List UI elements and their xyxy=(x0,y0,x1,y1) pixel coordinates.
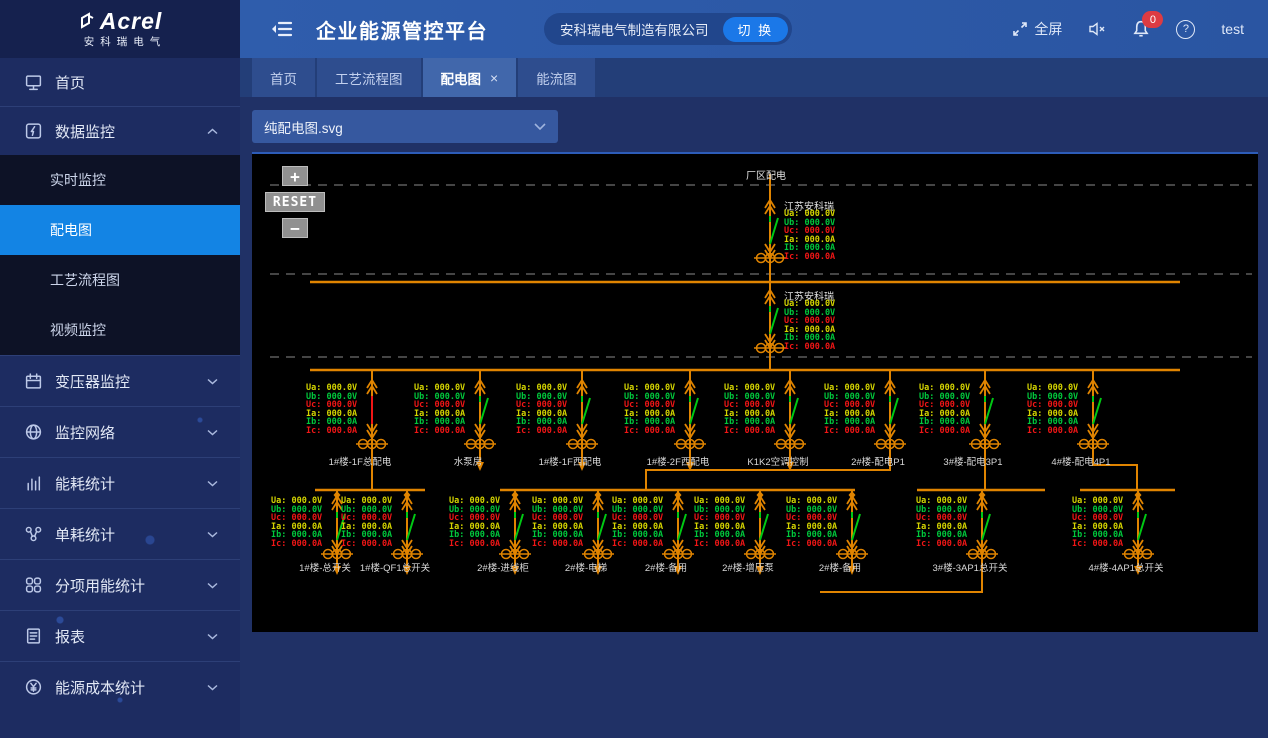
energy-stats-icon xyxy=(24,474,43,493)
sidebar-item-label: 首页 xyxy=(55,72,85,93)
unit-consumption-stats-icon xyxy=(24,525,43,544)
sidebar-item-label: 单耗统计 xyxy=(55,524,115,545)
chevron-down-icon xyxy=(207,480,218,487)
logo: Acrel 安科瑞电气 xyxy=(0,0,240,58)
username[interactable]: test xyxy=(1221,21,1244,37)
bottom-feeder-label: 4#楼-4AP1总开关 xyxy=(1051,560,1201,574)
sidebar-item-label: 能耗统计 xyxy=(55,473,115,494)
phase-readings: Ua: 000.0VUb: 000.0VUc: 000.0VIa: 000.0A… xyxy=(341,497,392,549)
tabbar: 首页工艺流程图配电图×能流图 xyxy=(240,58,1268,97)
tab-0[interactable]: 首页 xyxy=(252,58,315,97)
fullscreen-icon xyxy=(1012,21,1028,37)
zoom-reset-button[interactable]: RESET xyxy=(265,192,325,212)
bottom-feeder-label: 3#楼-3AP1总开关 xyxy=(895,560,1045,574)
chevron-down-icon xyxy=(207,429,218,436)
content: 纯配电图.svg + RESET − 厂区配电江苏安科瑞Ua: 000.0VUb… xyxy=(240,97,1268,738)
sidebar-item-label: 报表 xyxy=(55,626,85,647)
logo-subtitle: 安科瑞电气 xyxy=(84,34,167,49)
phase-readings: Ua: 000.0VUb: 000.0VUc: 000.0VIa: 000.0A… xyxy=(306,384,357,436)
phase-readings: Ua: 000.0VUb: 000.0VUc: 000.0VIa: 000.0A… xyxy=(824,384,875,436)
phase-readings: Ua: 000.0VUb: 000.0VUc: 000.0VIa: 000.0A… xyxy=(784,210,835,262)
sidebar-item-energy-cost-stats[interactable]: 能源成本统计 xyxy=(0,661,240,712)
phase-readings: Ua: 000.0VUb: 000.0VUc: 000.0VIa: 000.0A… xyxy=(1027,384,1078,436)
svg-file-select-value: 纯配电图.svg xyxy=(264,117,343,137)
acrel-logo-mark xyxy=(78,12,96,30)
phase-readings: Ua: 000.0VUb: 000.0VUc: 000.0VIa: 000.0A… xyxy=(624,384,675,436)
sidebar-subitem[interactable]: 视频监控 xyxy=(0,305,240,355)
top-feeder-label: 4#楼-配电4P1 xyxy=(1006,454,1156,468)
sidebar-nav: 首页数据监控实时监控配电图工艺流程图视频监控变压器监控监控网络能耗统计单耗统计分… xyxy=(0,58,240,712)
chevron-down-icon xyxy=(534,123,546,130)
sidebar-submenu: 实时监控配电图工艺流程图视频监控 xyxy=(0,155,240,355)
phase-readings: Ua: 000.0VUb: 000.0VUc: 000.0VIa: 000.0A… xyxy=(414,384,465,436)
phase-readings: Ua: 000.0VUb: 000.0VUc: 000.0VIa: 000.0A… xyxy=(449,497,500,549)
chevron-down-icon xyxy=(207,633,218,640)
tab-3[interactable]: 能流图 xyxy=(518,58,595,97)
phase-readings: Ua: 000.0VUb: 000.0VUc: 000.0VIa: 000.0A… xyxy=(786,497,837,549)
sidebar-item-unit-consumption-stats[interactable]: 单耗统计 xyxy=(0,508,240,559)
sidebar-item-monitor-network[interactable]: 监控网络 xyxy=(0,406,240,457)
sidebar-item-label: 数据监控 xyxy=(55,121,115,142)
notifications-bell[interactable]: 0 xyxy=(1132,20,1150,38)
tab-1[interactable]: 工艺流程图 xyxy=(317,58,421,97)
sidebar-subitem[interactable]: 工艺流程图 xyxy=(0,255,240,305)
chevron-down-icon xyxy=(207,582,218,589)
energy-cost-stats-icon xyxy=(24,678,43,697)
diagram-title: 厂区配电 xyxy=(746,167,786,182)
phase-readings: Ua: 000.0VUb: 000.0VUc: 000.0VIa: 000.0A… xyxy=(919,384,970,436)
sidebar-subitem[interactable]: 实时监控 xyxy=(0,155,240,205)
zoom-out-button[interactable]: − xyxy=(282,218,308,238)
tab-close-icon[interactable]: × xyxy=(490,70,498,86)
chevron-down-icon xyxy=(207,531,218,538)
tab-label: 工艺流程图 xyxy=(335,68,403,88)
collapse-sidebar-icon[interactable] xyxy=(270,17,294,41)
diagram-canvas[interactable]: + RESET − 厂区配电江苏安科瑞Ua: 000.0VUb: 000.0VU… xyxy=(252,152,1258,632)
sidebar-subitem[interactable]: 配电图 xyxy=(0,205,240,255)
header-actions: 全屏 0 ? test xyxy=(1012,19,1244,39)
phase-readings: Ua: 000.0VUb: 000.0VUc: 000.0VIa: 000.0A… xyxy=(1072,497,1123,549)
help-icon[interactable]: ? xyxy=(1176,20,1195,39)
tab-label: 能流图 xyxy=(536,68,577,88)
company-selector: 安科瑞电气制造有限公司 切 换 xyxy=(544,13,792,45)
phase-readings: Ua: 000.0VUb: 000.0VUc: 000.0VIa: 000.0A… xyxy=(612,497,663,549)
sidebar-item-home[interactable]: 首页 xyxy=(0,58,240,107)
tab-2[interactable]: 配电图× xyxy=(423,58,517,97)
phase-readings: Ua: 000.0VUb: 000.0VUc: 000.0VIa: 000.0A… xyxy=(532,497,583,549)
sidebar-item-data-monitor[interactable]: 数据监控 xyxy=(0,107,240,155)
header: 企业能源管控平台 安科瑞电气制造有限公司 切 换 全屏 0 ? test xyxy=(240,0,1268,58)
logo-text: Acrel xyxy=(100,10,163,32)
sidebar-item-label: 监控网络 xyxy=(55,422,115,443)
monitor-network-icon xyxy=(24,423,43,442)
sidebar-item-label: 变压器监控 xyxy=(55,371,130,392)
tab-label: 首页 xyxy=(270,68,297,88)
phase-readings: Ua: 000.0VUb: 000.0VUc: 000.0VIa: 000.0A… xyxy=(724,384,775,436)
notification-badge: 0 xyxy=(1142,11,1163,28)
phase-readings: Ua: 000.0VUb: 000.0VUc: 000.0VIa: 000.0A… xyxy=(516,384,567,436)
zoom-in-button[interactable]: + xyxy=(282,166,308,186)
transformer-monitor-icon xyxy=(24,372,43,391)
data-monitor-icon xyxy=(24,122,43,141)
home-icon xyxy=(24,73,43,92)
chevron-up-icon xyxy=(207,128,218,135)
phase-readings: Ua: 000.0VUb: 000.0VUc: 000.0VIa: 000.0A… xyxy=(916,497,967,549)
svg-file-select[interactable]: 纯配电图.svg xyxy=(252,110,558,143)
fullscreen-label: 全屏 xyxy=(1034,19,1062,39)
sidebar-item-label: 分项用能统计 xyxy=(55,575,145,596)
chevron-down-icon xyxy=(207,378,218,385)
sidebar-item-subitem-energy-stats[interactable]: 分项用能统计 xyxy=(0,559,240,610)
phase-readings: Ua: 000.0VUb: 000.0VUc: 000.0VIa: 000.0A… xyxy=(694,497,745,549)
sidebar: Acrel 安科瑞电气 首页数据监控实时监控配电图工艺流程图视频监控变压器监控监… xyxy=(0,0,240,738)
bottom-feeder-label: 2#楼-备用 xyxy=(765,560,915,574)
sidebar-item-energy-stats[interactable]: 能耗统计 xyxy=(0,457,240,508)
company-name: 安科瑞电气制造有限公司 xyxy=(560,19,709,39)
sidebar-item-reports[interactable]: 报表 xyxy=(0,610,240,661)
phase-readings: Ua: 000.0VUb: 000.0VUc: 000.0VIa: 000.0A… xyxy=(271,497,322,549)
sidebar-item-label: 能源成本统计 xyxy=(55,677,145,698)
phase-readings: Ua: 000.0VUb: 000.0VUc: 000.0VIa: 000.0A… xyxy=(784,300,835,352)
reports-icon xyxy=(24,627,43,646)
mute-icon[interactable] xyxy=(1088,21,1106,37)
fullscreen-button[interactable]: 全屏 xyxy=(1012,19,1062,39)
switch-company-button[interactable]: 切 换 xyxy=(723,17,789,42)
page-title: 企业能源管控平台 xyxy=(316,15,488,44)
chevron-down-icon xyxy=(207,684,218,691)
sidebar-item-transformer-monitor[interactable]: 变压器监控 xyxy=(0,355,240,406)
subitem-energy-stats-icon xyxy=(24,576,43,595)
tab-label: 配电图 xyxy=(441,68,482,88)
